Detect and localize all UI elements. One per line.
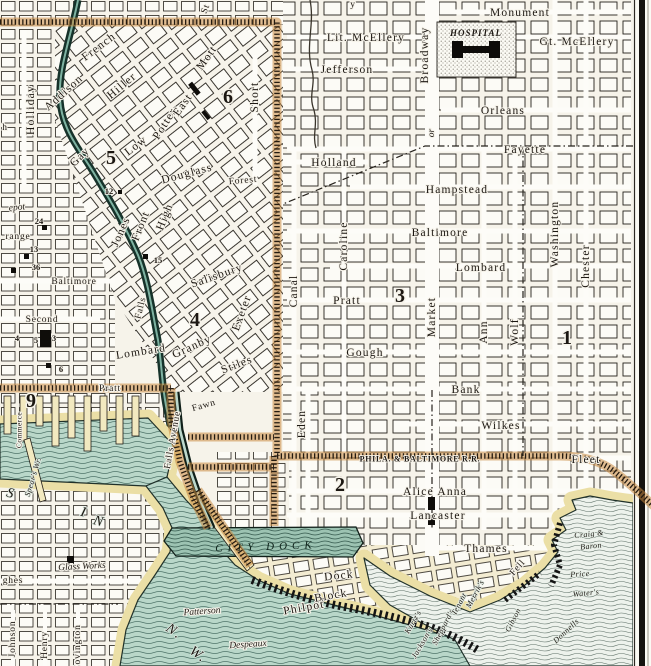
street-holliday: Holliday — [25, 85, 37, 135]
district-3: 3 — [395, 285, 405, 307]
street-lit-mcellery: Lit. McEllery — [327, 32, 405, 44]
map-border — [633, 0, 651, 666]
district-1: 1 — [562, 327, 572, 349]
frag-depot: epot — [8, 202, 26, 213]
bldg-num-13: 13 — [30, 244, 39, 254]
frag-orange: range — [5, 232, 30, 242]
street-lancaster: Lancaster — [410, 510, 466, 522]
street-canal: Canal — [288, 275, 300, 308]
street-second: Second — [26, 315, 59, 325]
bldg-num-24: 24 — [35, 216, 44, 226]
street-gough: Gough — [346, 347, 383, 359]
street-covington: Covington — [73, 624, 83, 666]
street-pratt-e: Pratt — [333, 295, 361, 307]
bldg-num-12: 12 — [105, 186, 114, 196]
street-market: Market — [426, 297, 438, 337]
map-canvas: MonumentLit. McElleryGt. McElleryJeffers… — [0, 0, 651, 666]
street-chester: Chester — [580, 244, 592, 288]
frag-commerce: Commerce — [15, 412, 24, 448]
bldg-num-14: 36 — [32, 262, 41, 272]
street-washington: Washington — [549, 201, 561, 268]
bldg-num-6: 6 — [59, 364, 63, 374]
street-jefferson: Jefferson — [321, 64, 374, 76]
hospital-label: HOSPITAL — [449, 28, 502, 38]
street-alice-anna: Alice Anna — [403, 486, 467, 498]
bldg-num-5: 5 — [34, 335, 38, 345]
district-4: 4 — [190, 309, 200, 331]
frag-y: y — [350, 0, 356, 10]
street-johnson: Johnson — [8, 621, 18, 658]
street-ann: Ann — [478, 320, 490, 343]
street-lombard-e: Lombard — [456, 262, 507, 274]
street-caroline: Caroline — [338, 221, 350, 270]
street-pratt-w: Pratt — [99, 384, 121, 394]
street-monument: Monument — [490, 7, 550, 19]
street-bank: Bank — [451, 384, 480, 396]
street-henry: Henry — [40, 631, 50, 659]
street-hughes-frag: ghes — [3, 576, 24, 586]
bldg-num-3: 3 — [52, 333, 56, 343]
street-broadway: Broadway — [419, 27, 431, 84]
street-thames: Thames — [464, 543, 508, 555]
street-fayette: Fayette — [504, 144, 546, 156]
bldg-num-15: 15 — [154, 255, 163, 265]
district-6: 6 — [223, 86, 233, 108]
frag-h: h — [2, 123, 8, 133]
street-wolf: Wolf — [509, 318, 521, 346]
street-eden: Eden — [296, 410, 308, 438]
wharf-price: Price — [569, 569, 590, 579]
street-baltimore-w: Baltimore — [51, 277, 96, 287]
street-wilkes: Wilkes — [481, 420, 520, 432]
street-fleet: Fleet — [572, 454, 601, 466]
street-gt-mcellery: Gt. McEllery — [539, 36, 614, 48]
district-2: 2 — [335, 474, 345, 496]
railroad-label: PHILA. & BALTIMORE R.R. — [360, 455, 481, 464]
district-9: 9 — [26, 390, 36, 412]
district-5: 5 — [106, 147, 116, 169]
street-orleans: Orleans — [481, 105, 525, 117]
frag-or: or — [427, 128, 437, 137]
city-map: MonumentLit. McElleryGt. McElleryJeffers… — [0, 0, 651, 666]
street-holland: Holland — [311, 157, 356, 169]
street-baltimore-e: Baltimore — [412, 227, 469, 239]
street-hampstead: Hampstead — [426, 184, 489, 196]
street-short: Short — [249, 82, 261, 113]
